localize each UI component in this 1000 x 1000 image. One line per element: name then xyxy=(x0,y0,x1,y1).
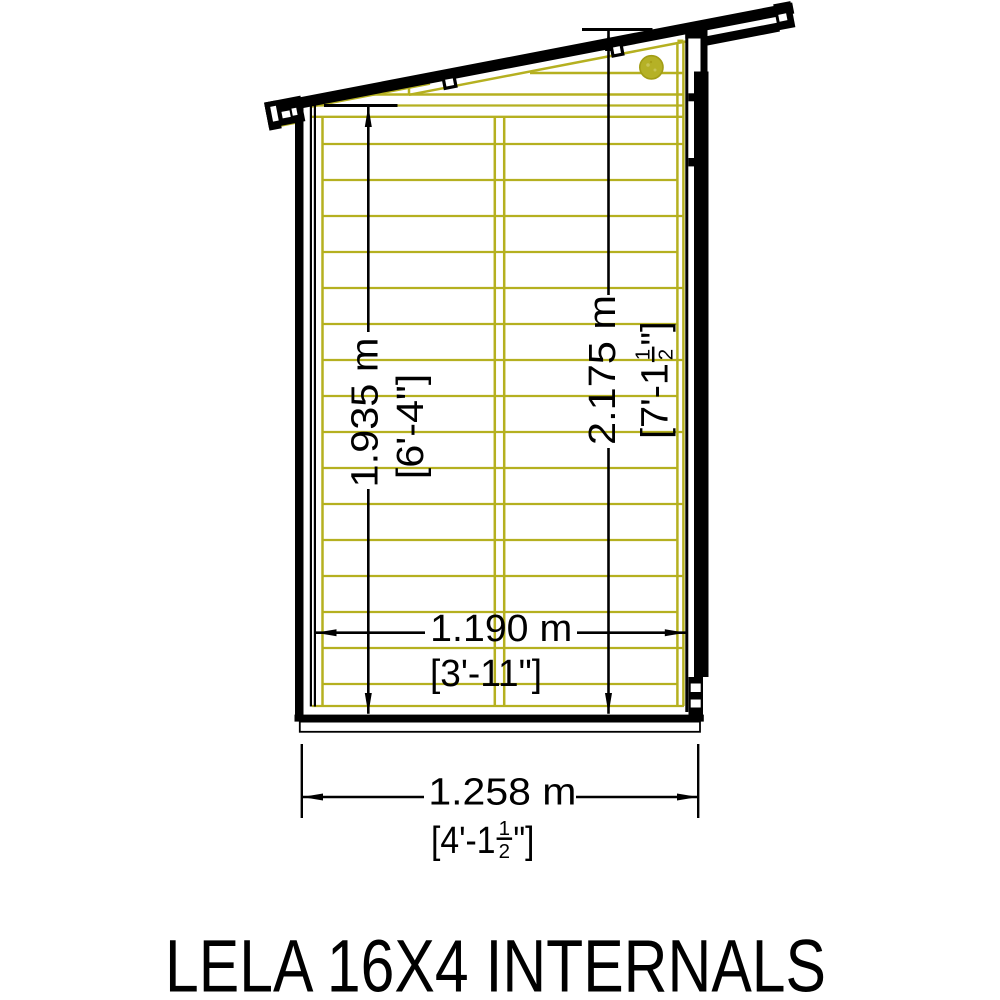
svg-text:"]: "] xyxy=(513,820,534,862)
svg-text:"]: "] xyxy=(635,322,677,346)
svg-text:2: 2 xyxy=(654,349,677,360)
svg-text:1: 1 xyxy=(499,817,510,840)
svg-text:1.258 m: 1.258 m xyxy=(428,771,576,813)
svg-text:2: 2 xyxy=(499,840,510,863)
svg-text:2.175 m: 2.175 m xyxy=(582,295,624,445)
svg-text:[4'-1: [4'-1 xyxy=(431,820,496,862)
svg-text:1.190 m: 1.190 m xyxy=(430,608,572,650)
svg-text:LELA 16X4 INTERNALS: LELA 16X4 INTERNALS xyxy=(165,925,826,1000)
svg-text:[6'-4"]: [6'-4"] xyxy=(390,374,432,480)
svg-text:1: 1 xyxy=(631,349,654,360)
svg-text:[3'-11"]: [3'-11"] xyxy=(430,653,542,695)
svg-text:1.935 m: 1.935 m xyxy=(345,338,387,488)
svg-text:[7'-1: [7'-1 xyxy=(635,363,677,439)
